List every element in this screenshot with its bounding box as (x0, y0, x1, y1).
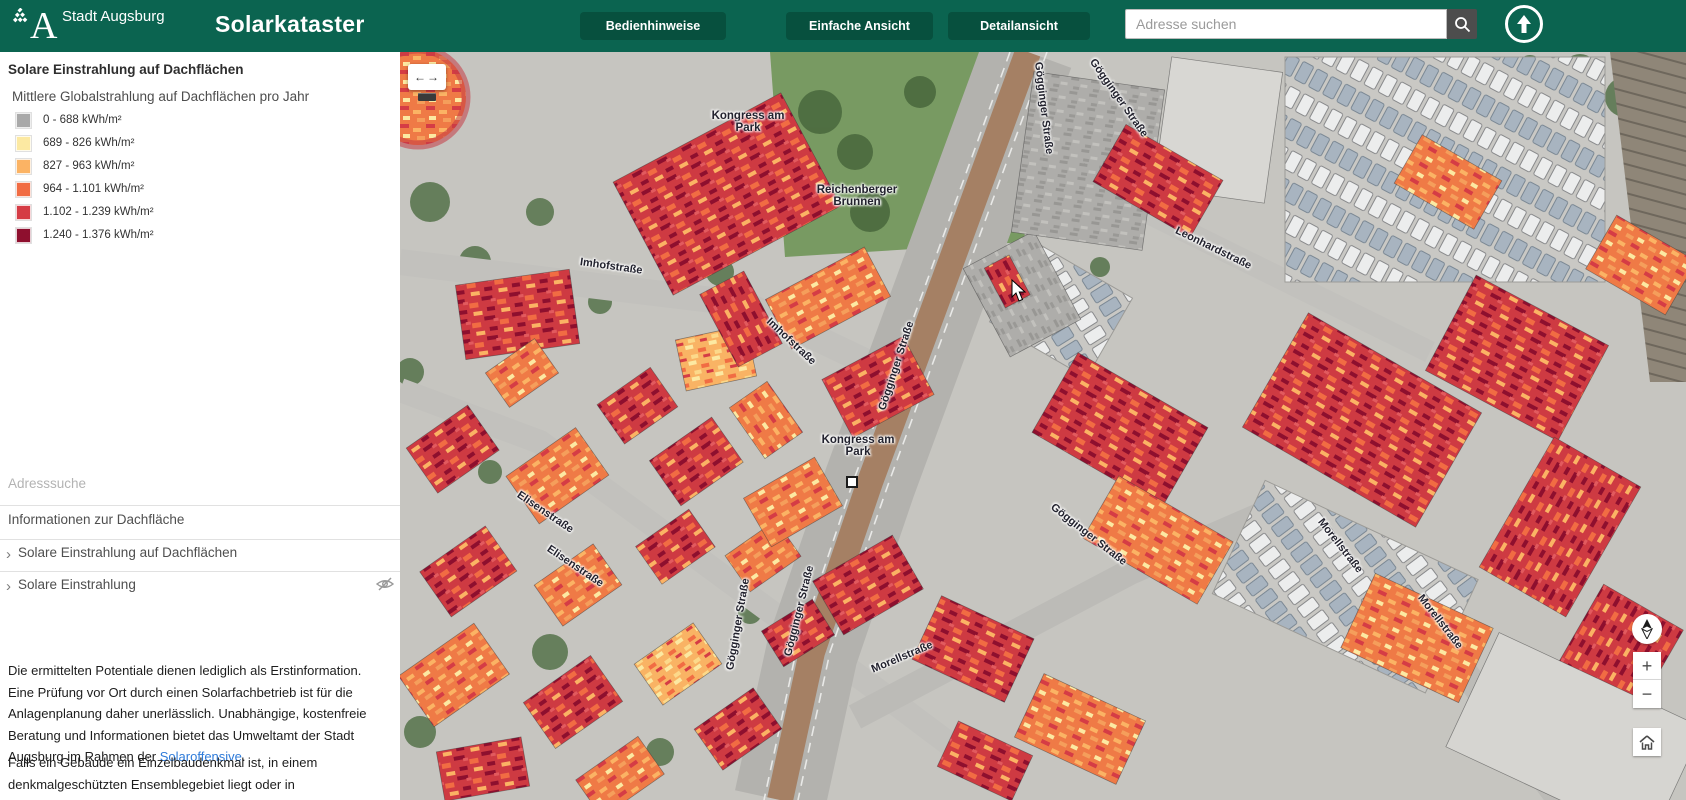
zoom-in-button[interactable]: + (1633, 652, 1661, 680)
address-search-input[interactable] (1125, 9, 1447, 39)
bedienhinweise-button[interactable]: Bedienhinweise (580, 12, 726, 40)
legend-swatch (16, 228, 31, 243)
divider (0, 571, 400, 572)
arrow-up-icon (1515, 14, 1533, 34)
disclaimer-text: Falls ein Gebäude ein Einzelbaudenkmal i… (8, 755, 358, 800)
legend-item: 1.240 - 1.376 kWh/m² (16, 227, 154, 243)
chevron-right-icon: › (6, 580, 11, 594)
swipe-compare-slider[interactable] (418, 93, 436, 101)
legend-swatch (16, 182, 31, 197)
divider (0, 505, 400, 506)
map-label-kongress-am-park: Kongress am Park (820, 434, 896, 458)
app-header: A Stadt Augsburg Solarkataster Bedienhin… (0, 0, 1686, 52)
legend-item: 1.102 - 1.239 kWh/m² (16, 204, 154, 220)
sidebar: Solare Einstrahlung auf Dachflächen Mitt… (0, 52, 400, 800)
map-canvas[interactable]: ←→ Kongress am Park Reichenberger Brunne… (400, 52, 1686, 800)
einfache-ansicht-button[interactable]: Einfache Ansicht (786, 12, 933, 40)
scroll-top-button[interactable] (1505, 5, 1543, 43)
legend-item-label: 827 - 963 kWh/m² (43, 160, 134, 172)
legend-item-label: 1.102 - 1.239 kWh/m² (43, 206, 154, 218)
divider (0, 539, 400, 540)
legend-swatch (16, 113, 31, 128)
legend-subtitle: Mittlere Globalstrahlung auf Dachflächen… (12, 89, 309, 104)
legend-item-label: 964 - 1.101 kWh/m² (43, 183, 144, 195)
layer-visibility-toggle[interactable] (376, 576, 394, 597)
pinecone-icon (12, 8, 28, 28)
stadt-augsburg-logo[interactable]: A (12, 6, 57, 46)
home-extent-button[interactable] (1633, 728, 1661, 756)
home-icon (1639, 735, 1655, 750)
menu-item-informationen-zur-dachflaeche[interactable]: Informationen zur Dachfläche (8, 512, 184, 527)
page-title: Solarkataster (215, 11, 365, 38)
menu-item-solare-einstrahlung-dachflaechen[interactable]: Solare Einstrahlung auf Dachflächen (18, 545, 237, 560)
legend-swatch (16, 136, 31, 151)
menu-item-adresssuche: Adresssuche (8, 476, 86, 491)
legend-item: 964 - 1.101 kWh/m² (16, 181, 144, 197)
zoom-out-button[interactable]: − (1633, 680, 1661, 708)
disclaimer-paragraph-2: Falls ein Gebäude ein Einzelbaudenkmal i… (8, 752, 380, 800)
menu-item-solare-einstrahlung[interactable]: Solare Einstrahlung (18, 577, 136, 592)
search-icon (1454, 16, 1471, 33)
aerial-solar-overlay (400, 52, 1686, 800)
swipe-arrows-icon: ←→ (414, 70, 440, 84)
chevron-right-icon: › (6, 548, 11, 562)
org-name: Stadt Augsburg (62, 8, 165, 25)
eye-slash-icon (376, 576, 394, 592)
search-button[interactable] (1447, 9, 1477, 39)
legend-item: 689 - 826 kWh/m² (16, 135, 134, 151)
legend-swatch (16, 159, 31, 174)
legend-item-label: 0 - 688 kWh/m² (43, 114, 122, 126)
legend-item: 827 - 963 kWh/m² (16, 158, 134, 174)
compass-button[interactable] (1632, 614, 1662, 644)
augsburg-a-glyph: A (30, 6, 57, 46)
swipe-compare-handle[interactable]: ←→ (408, 64, 446, 90)
map-label-reichenberger-brunnen: Reichenberger Brunnen (808, 184, 906, 208)
detailansicht-button[interactable]: Detailansicht (948, 12, 1090, 40)
map-label-kongress-am-park: Kongress am Park (710, 110, 786, 134)
legend-swatch (16, 205, 31, 220)
compass-needle-icon (1640, 619, 1654, 639)
legend-item: 0 - 688 kWh/m² (16, 112, 122, 128)
legend-item-label: 689 - 826 kWh/m² (43, 137, 134, 149)
legend-title: Solare Einstrahlung auf Dachflächen (8, 62, 244, 77)
poi-square-marker (846, 476, 858, 488)
legend-item-label: 1.240 - 1.376 kWh/m² (43, 229, 154, 241)
